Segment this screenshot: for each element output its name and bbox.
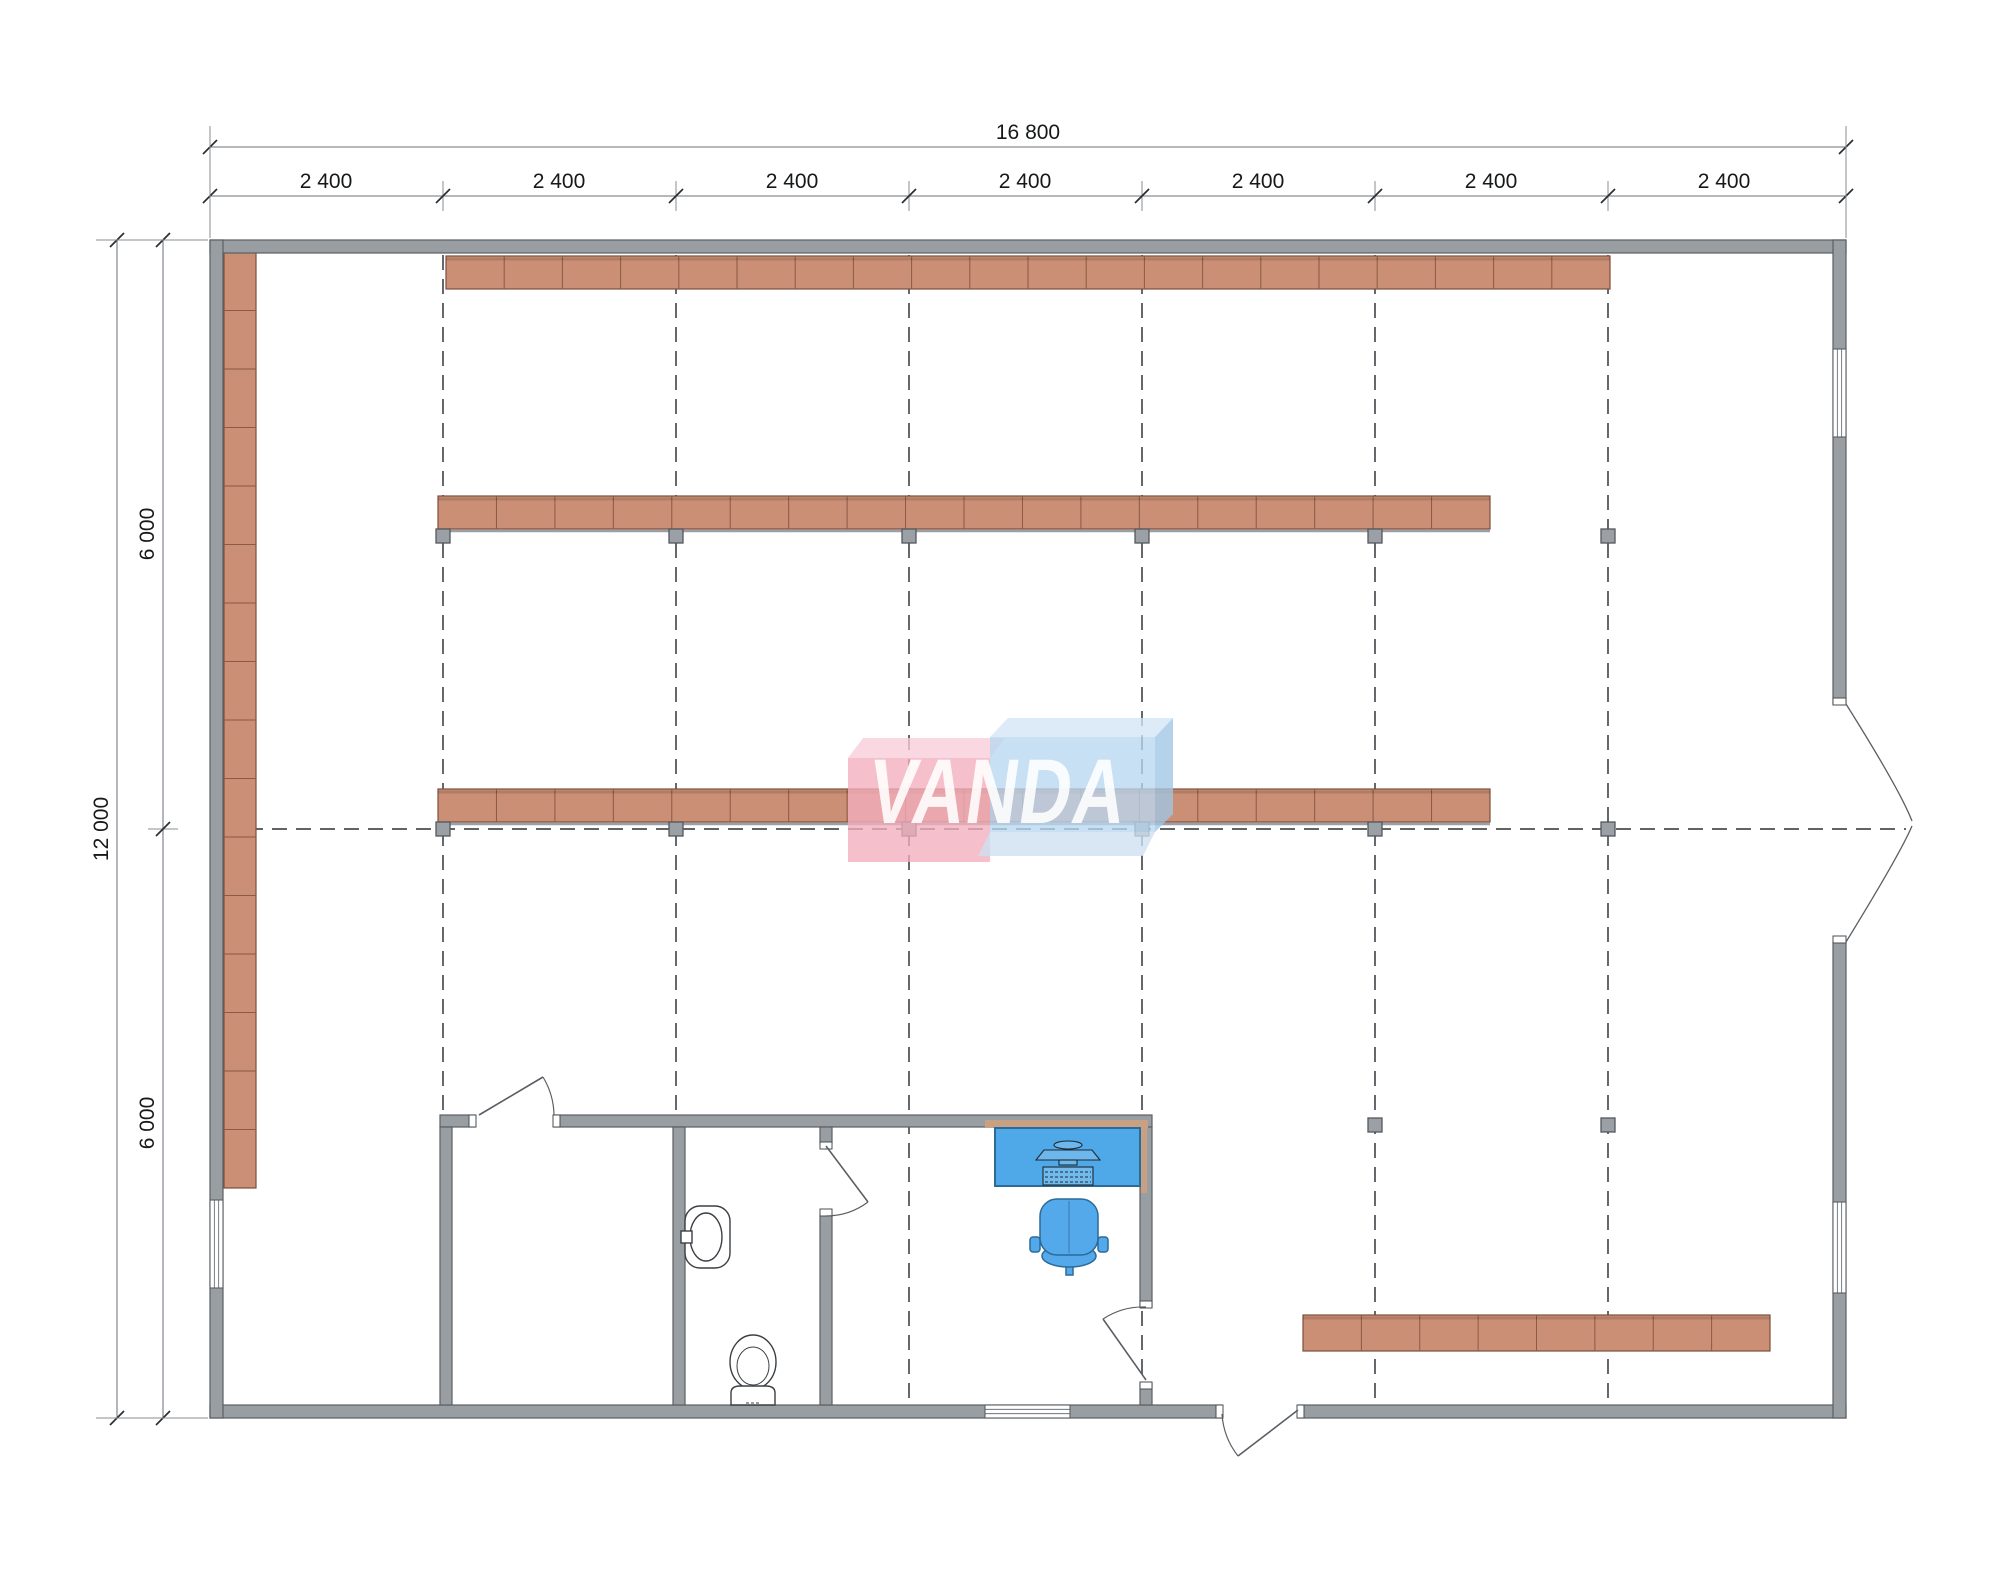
bathroom-left-wall — [673, 1127, 685, 1405]
shelf-row-2 — [438, 496, 1490, 531]
toilet-tank — [731, 1386, 775, 1405]
door-double-exterior-right — [1846, 704, 1912, 942]
window-frame — [1833, 1202, 1846, 1293]
dim-segment-label: 6 000 — [136, 1097, 159, 1150]
window-frame — [210, 1200, 223, 1288]
dim-segment-label: 2 400 — [1232, 170, 1285, 193]
chair-armrest-left — [1030, 1237, 1040, 1252]
window-bottom-wall — [985, 1405, 1070, 1418]
dim-segment-label: 2 400 — [999, 170, 1052, 193]
wall-top — [210, 240, 1846, 253]
vanda-logo-watermark: VANDA — [848, 718, 1173, 862]
dim-segment-label: 2 400 — [533, 170, 586, 193]
door-bathroom — [826, 1146, 868, 1216]
logo-blue-box-side — [1155, 718, 1173, 832]
dim-segment-label: 6 000 — [136, 508, 159, 561]
floor-plan-drawing: 16 800 2 400 2 400 2 400 2 400 2 400 2 4… — [0, 0, 2000, 1574]
door-leaf-lower — [1846, 826, 1912, 942]
dim-total-width-label: 16 800 — [996, 121, 1060, 144]
dim-segment-label: 2 400 — [300, 170, 353, 193]
column-marker — [1601, 822, 1615, 836]
office-chair — [1030, 1199, 1108, 1275]
wall-right-lower — [1833, 942, 1846, 1418]
door-jamb — [1833, 698, 1846, 705]
door-leaf-upper — [1846, 704, 1912, 821]
door-storage-room — [479, 1077, 554, 1115]
column-marker — [902, 529, 916, 543]
door-jamb — [820, 1142, 832, 1149]
column-marker — [1368, 822, 1382, 836]
wall-right-upper — [1833, 240, 1846, 704]
column-marker — [669, 529, 683, 543]
bathroom-right-stub — [820, 1127, 832, 1143]
logo-blue-box-lid — [990, 718, 1173, 737]
door-exterior-bottom — [1222, 1410, 1298, 1456]
column-marker — [1601, 529, 1615, 543]
door-jamb — [1140, 1382, 1152, 1389]
door-arc — [543, 1077, 554, 1115]
bathroom-right-wall — [820, 1215, 832, 1405]
dim-total-height-label: 12 000 — [90, 797, 113, 861]
dim-segment-label: 2 400 — [1698, 170, 1751, 193]
door-arc — [1103, 1307, 1146, 1319]
dim-segment-label: 2 400 — [766, 170, 819, 193]
office-desk — [995, 1128, 1140, 1186]
chair-armrest-right — [1098, 1237, 1108, 1252]
window-frame — [1833, 349, 1846, 437]
window-right-lower — [1833, 1202, 1846, 1293]
door-leaf — [826, 1146, 868, 1202]
rooms-left-wall — [440, 1127, 452, 1405]
column-marker — [436, 822, 450, 836]
toilet-bowl-inner — [737, 1347, 769, 1385]
shelf-row-bottom — [1303, 1315, 1770, 1351]
column-marker — [1135, 529, 1149, 543]
fixtures-layer — [681, 1120, 1148, 1405]
door-arc — [1222, 1414, 1238, 1456]
window-frame — [985, 1405, 1070, 1418]
shelf-row-1 — [446, 256, 1610, 289]
door-jamb — [1297, 1405, 1304, 1418]
bathroom-sink — [681, 1206, 730, 1268]
sink-faucet — [681, 1231, 692, 1243]
logo-text: VANDA — [862, 740, 1134, 843]
door-office — [1103, 1307, 1146, 1380]
sink-bowl — [690, 1213, 722, 1261]
door-jamb — [469, 1115, 476, 1127]
window-left-wall — [210, 1200, 223, 1288]
door-jamb — [820, 1209, 832, 1216]
counter-strip-side — [1141, 1127, 1147, 1193]
column-marker — [436, 529, 450, 543]
floor-plan-canvas: 16 800 2 400 2 400 2 400 2 400 2 400 2 4… — [0, 0, 2000, 1574]
shelf-row-left — [224, 252, 256, 1188]
door-leaf — [479, 1077, 543, 1115]
dim-segment-label: 2 400 — [1465, 170, 1518, 193]
column-marker — [669, 822, 683, 836]
window-right-upper — [1833, 349, 1846, 437]
door-jamb — [1833, 936, 1846, 943]
column-marker — [1601, 1118, 1615, 1132]
computer-keyboard — [1043, 1167, 1093, 1185]
wall-bottom-right — [1298, 1405, 1846, 1418]
toilet — [730, 1335, 776, 1405]
door-leaf — [1103, 1319, 1146, 1380]
column-marker — [1368, 1118, 1382, 1132]
door-jamb — [553, 1115, 560, 1127]
counter-strip-top — [985, 1120, 1148, 1128]
column-marker — [1368, 529, 1382, 543]
door-leaf — [1238, 1410, 1298, 1456]
